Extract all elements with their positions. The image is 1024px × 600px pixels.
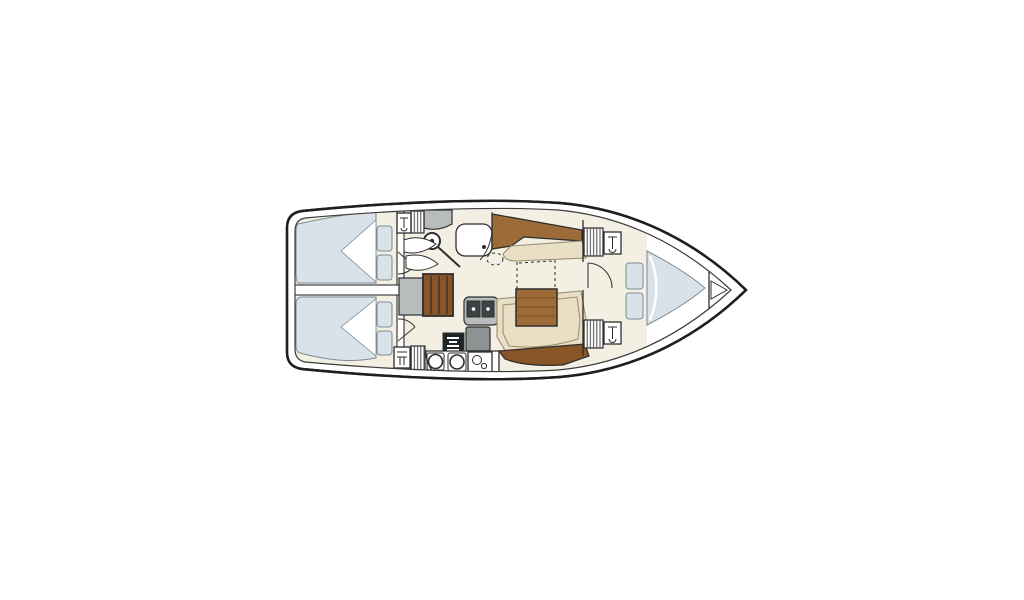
refrigerator <box>466 327 490 351</box>
companionway-platform <box>399 278 423 315</box>
aft-stbd-pillow-2 <box>377 331 392 355</box>
companionway-steps <box>423 274 453 316</box>
head-hanging-locker <box>411 211 424 233</box>
aft-port-pillow-1 <box>377 226 392 251</box>
round-sink-unit <box>468 352 492 372</box>
boat-floor-plan <box>0 0 1024 600</box>
fwd-locker-top <box>584 228 603 256</box>
aft-stbd-pillow-1 <box>377 302 392 327</box>
fwd-cushion-2 <box>626 293 643 319</box>
washbasin-drain-dot <box>482 245 486 249</box>
aft-port-pillow-2 <box>377 255 392 280</box>
sink-left-drain <box>472 307 476 311</box>
sink-right-drain <box>486 307 490 311</box>
floor-plan-canvas <box>0 0 1024 600</box>
aft-cabin-divider-wall <box>294 285 400 295</box>
head-vanity-counter <box>424 210 452 229</box>
companionway <box>399 274 453 316</box>
fwd-cushion-1 <box>626 263 643 289</box>
stove-burner-1 <box>429 355 443 369</box>
galley-hanging-locker <box>411 346 425 370</box>
stove-burner-2 <box>450 355 464 369</box>
fwd-locker-bottom <box>584 320 603 348</box>
